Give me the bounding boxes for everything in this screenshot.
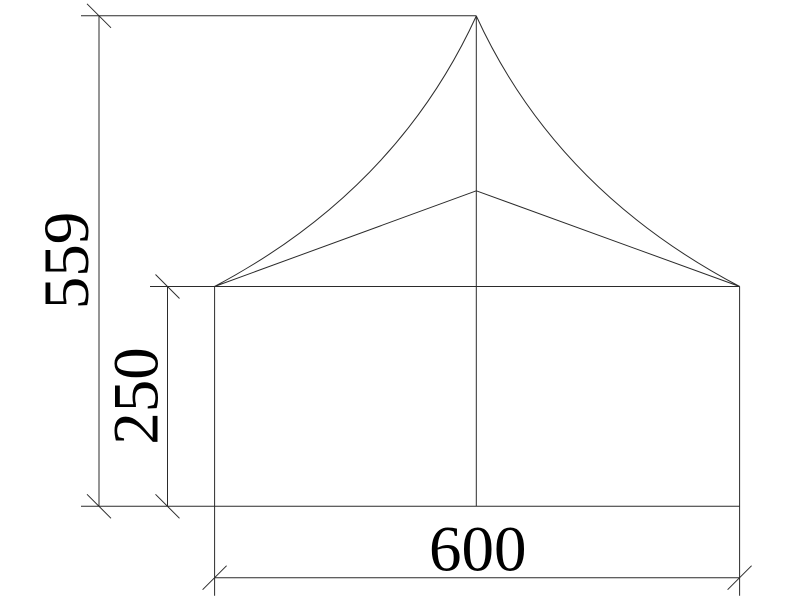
svg-text:600: 600: [429, 514, 527, 586]
svg-text:559: 559: [31, 212, 103, 310]
svg-text:250: 250: [100, 347, 172, 445]
